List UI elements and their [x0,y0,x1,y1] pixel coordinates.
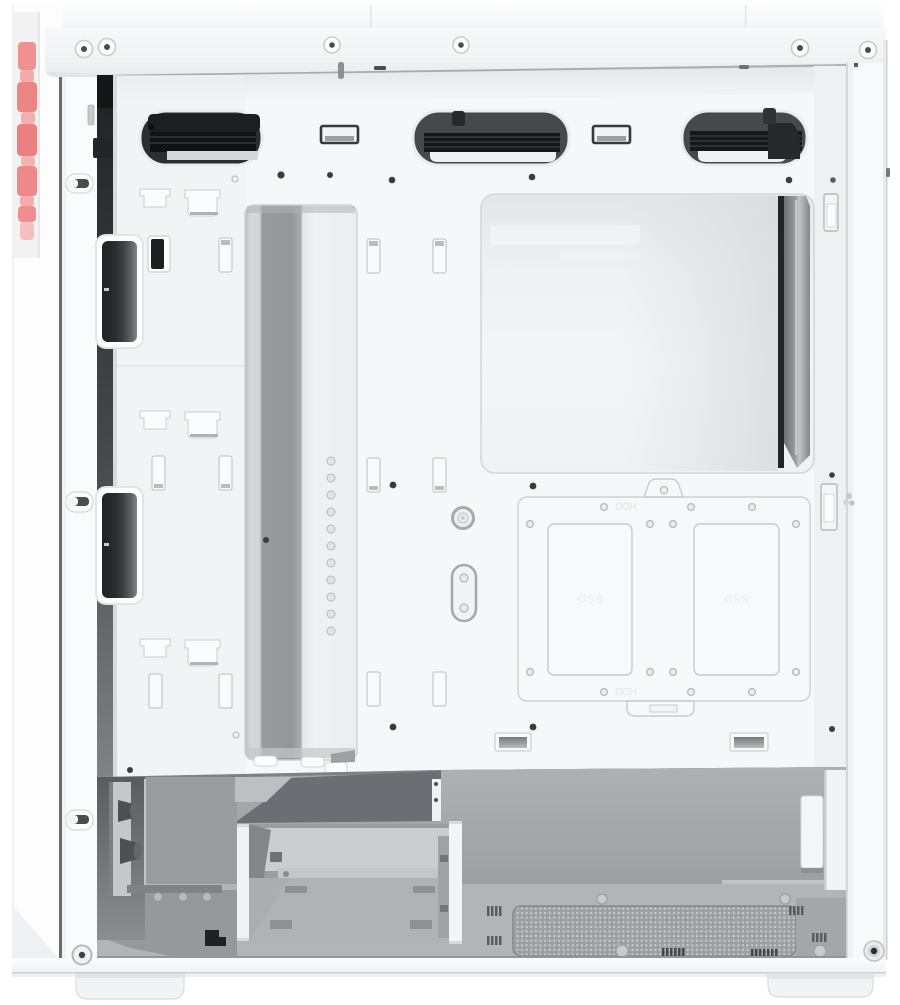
svg-text:SSD: SSD [577,592,603,604]
svg-text:HDD: HDD [615,685,637,696]
svg-text:HDD: HDD [615,500,637,511]
svg-text:SSD: SSD [723,592,749,604]
